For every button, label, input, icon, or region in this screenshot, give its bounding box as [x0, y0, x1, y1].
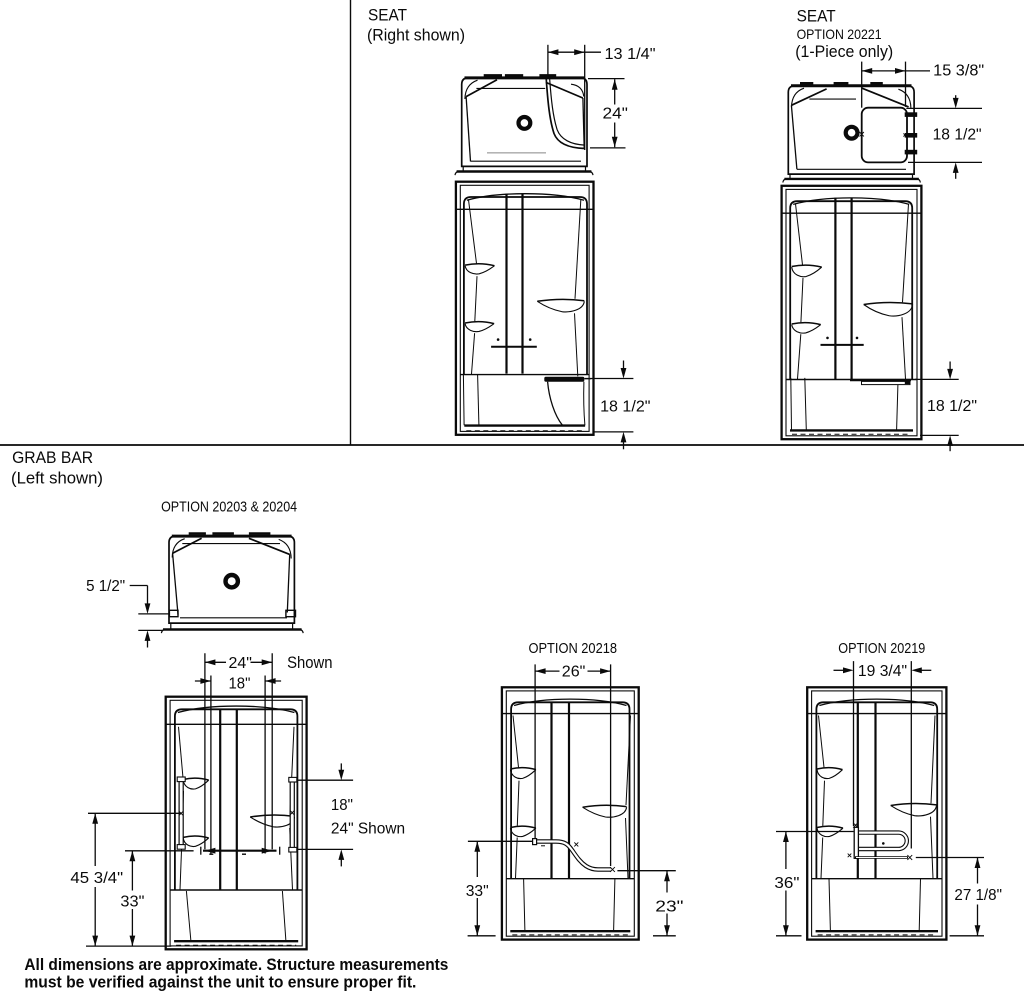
- svg-text:26": 26": [562, 664, 586, 681]
- svg-text:23": 23": [655, 898, 683, 915]
- svg-text:All dimensions are approximate: All dimensions are approximate. Structur…: [24, 955, 448, 974]
- svg-text:(Left shown): (Left shown): [11, 469, 103, 488]
- svg-text:OPTION 20203 & 20204: OPTION 20203 & 20204: [161, 498, 297, 515]
- svg-text:18": 18": [331, 797, 353, 814]
- svg-text:18": 18": [229, 675, 251, 692]
- svg-text:24": 24": [603, 106, 628, 123]
- svg-text:36": 36": [774, 875, 799, 892]
- svg-text:Shown: Shown: [287, 653, 332, 672]
- svg-text:24" Shown: 24" Shown: [331, 820, 405, 837]
- svg-text:45 3/4": 45 3/4": [70, 870, 123, 887]
- svg-text:27 1/8": 27 1/8": [954, 887, 1002, 904]
- svg-text:SEAT: SEAT: [797, 7, 836, 26]
- svg-text:(Right shown): (Right shown): [367, 25, 465, 44]
- svg-text:33": 33": [466, 883, 489, 900]
- svg-text:33": 33": [120, 893, 144, 910]
- svg-text:13 1/4": 13 1/4": [605, 46, 656, 63]
- svg-text:15 3/8": 15 3/8": [933, 63, 984, 80]
- svg-text:OPTION 20218: OPTION 20218: [529, 640, 618, 657]
- svg-text:must be verified against the u: must be verified against the unit to ens…: [24, 973, 416, 992]
- svg-text:OPTION 20221: OPTION 20221: [797, 26, 882, 42]
- svg-text:24": 24": [229, 655, 252, 672]
- svg-text:(1-Piece only): (1-Piece only): [795, 42, 893, 61]
- svg-text:18 1/2": 18 1/2": [600, 398, 650, 415]
- svg-text:19 3/4": 19 3/4": [858, 663, 907, 680]
- svg-text:OPTION 20219: OPTION 20219: [838, 640, 925, 657]
- svg-text:SEAT: SEAT: [368, 6, 407, 25]
- svg-text:18 1/2": 18 1/2": [927, 398, 977, 415]
- svg-text:18 1/2": 18 1/2": [933, 126, 982, 143]
- svg-text:5 1/2": 5 1/2": [86, 578, 125, 595]
- svg-text:GRAB BAR: GRAB BAR: [12, 448, 93, 467]
